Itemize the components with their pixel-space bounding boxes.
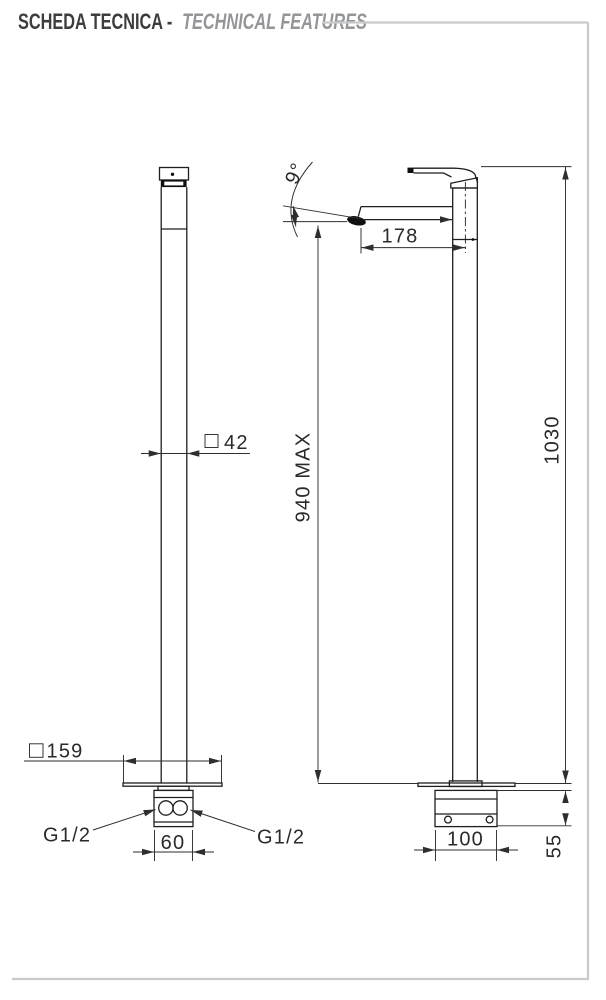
side-cartridge-cover	[451, 178, 478, 188]
inlet-callout-right: G1/2	[191, 810, 306, 849]
dim-label-60: 60	[161, 832, 186, 854]
inlet-callout-left: G1/2	[43, 810, 156, 847]
dim-base-depth: 100	[414, 829, 518, 862]
dim-label-9deg: 9°	[281, 159, 310, 188]
dim-label-42: 42	[224, 432, 249, 454]
side-joint-dot	[472, 238, 475, 241]
square-symbol	[30, 744, 44, 758]
square-symbol	[205, 435, 218, 448]
dim-spout-height: 940 MAX	[293, 226, 419, 784]
dimensions: 42 159 60	[24, 159, 572, 861]
dim-spout-angle: 9°	[281, 159, 361, 237]
side-screw-hole-right	[486, 816, 493, 823]
dim-label-159: 159	[47, 741, 84, 763]
label-g12-right: G1/2	[257, 827, 305, 849]
side-lever-bottom	[414, 173, 452, 177]
front-view	[123, 168, 222, 827]
side-lever-tip	[408, 168, 414, 173]
dim-spout-reach: 178	[361, 226, 465, 254]
dim-base-height: 55	[497, 791, 572, 859]
inlet-port-left	[159, 801, 173, 815]
dim-label-100: 100	[447, 829, 484, 851]
dim-label-55: 55	[544, 834, 566, 859]
dim-label-940max: 940 MAX	[293, 432, 315, 523]
front-column	[161, 187, 187, 783]
dim-total-height: 1030	[481, 167, 572, 784]
dim-label-178: 178	[382, 226, 419, 248]
side-screw-hole-left	[445, 816, 452, 823]
dim-floor-plate-width: 159	[24, 741, 222, 784]
dim-label-1030: 1030	[542, 415, 564, 464]
technical-sheet-page: SCHEDA TECNICA - TECHNICAL FEATURES	[0, 0, 606, 1000]
side-view	[346, 168, 515, 827]
front-spout-slot	[164, 182, 183, 186]
side-floor-plate	[418, 783, 515, 786]
inlet-port-right	[173, 801, 187, 815]
side-spout-tip-face	[358, 207, 361, 217]
front-head-pin	[171, 173, 174, 176]
side-base-lines	[435, 799, 497, 814]
dim-body-square-width: 42	[141, 432, 250, 454]
side-column	[453, 188, 478, 782]
drawing-canvas: 42 159 60	[0, 0, 606, 1000]
label-g12-left: G1/2	[43, 825, 91, 847]
dim-inlet-spacing: 60	[133, 830, 214, 861]
